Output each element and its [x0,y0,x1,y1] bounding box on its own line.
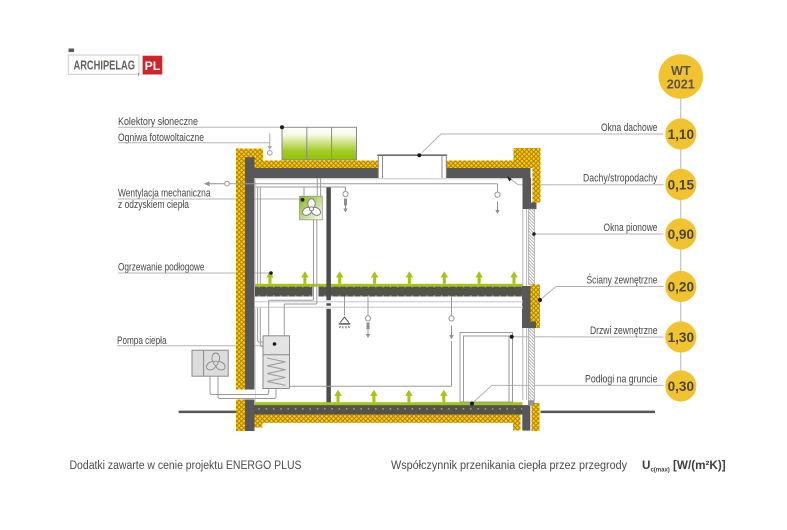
svg-text:Dachy/stropodachy: Dachy/stropodachy [583,173,658,185]
svg-text:Okna pionowe: Okna pionowe [604,222,658,234]
svg-text:ARCHIPELAG: ARCHIPELAG [74,58,136,73]
svg-text:Wentylacja mechaniczna: Wentylacja mechaniczna [118,187,211,199]
svg-text:,: , [137,67,140,78]
svg-text:0,90: 0,90 [668,227,694,242]
svg-text:WT: WT [671,64,691,78]
svg-text:z odzyskiem ciepła: z odzyskiem ciepła [118,199,190,211]
svg-text:1,30: 1,30 [668,330,694,345]
svg-text:Kolektory słoneczne: Kolektory słoneczne [118,116,198,128]
svg-text:0,20: 0,20 [668,279,694,294]
svg-text:Pompa ciepła: Pompa ciepła [117,335,167,347]
svg-text:0,30: 0,30 [668,379,694,394]
svg-text:0,15: 0,15 [668,177,695,192]
svg-text:Uc(max) [W/(m²K)]: Uc(max) [W/(m²K)] [642,459,726,474]
svg-text:Ściany zewnętrzne: Ściany zewnętrzne [587,274,658,287]
svg-text:Współczynnik przenikania ciepł: Współczynnik przenikania ciepła przez pr… [391,460,627,472]
svg-text:Dodatki zawarte w cenie projek: Dodatki zawarte w cenie projektu ENERGO … [70,460,302,472]
svg-text:PL: PL [145,59,161,73]
svg-text:Podłogi na gruncie: Podłogi na gruncie [585,373,658,385]
svg-text:Drzwi zewnętrzne: Drzwi zewnętrzne [590,325,658,337]
svg-text:Okna dachowe: Okna dachowe [601,122,658,134]
svg-text:Ogrzewanie podłogowe: Ogrzewanie podłogowe [118,262,205,274]
svg-text:2021: 2021 [667,78,695,92]
svg-text:1,10: 1,10 [668,127,694,142]
